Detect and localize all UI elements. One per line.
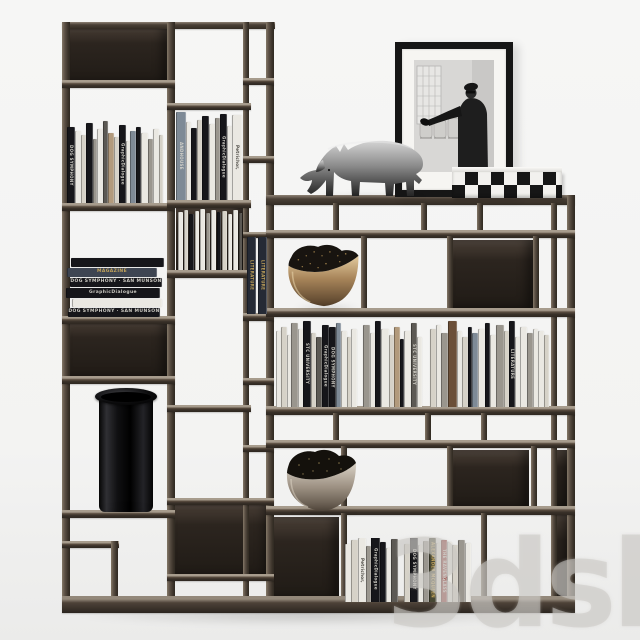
book-spine: GraphicDialogue (66, 288, 160, 298)
book-spine: LITERATURE (258, 237, 267, 314)
book-spine: DOG SYMPHONY (329, 327, 336, 407)
book-spine (417, 337, 422, 407)
book-spine: GraphicDialogue (322, 325, 329, 407)
shelf-rail (167, 270, 251, 278)
book-spine: Petrichor, (358, 538, 366, 602)
book-spine (222, 211, 227, 270)
book-spine (404, 331, 411, 407)
book-spine (195, 211, 199, 270)
books-mid-top: ANDHOUSEGraphicDialoguePetrichor, (176, 108, 243, 200)
book-spine: GraphicDialogue (119, 125, 126, 203)
book-spine (86, 123, 93, 203)
book-spine (159, 135, 163, 203)
book-spine (184, 210, 188, 270)
book-spine (291, 323, 298, 407)
render-canvas: DOG SYMPHONYGraphicDialogue ANDHOUSEGrap… (0, 0, 640, 640)
book-spine (228, 214, 232, 270)
black-vase (95, 388, 157, 512)
shelf-rail (167, 574, 274, 581)
shelf-rail (62, 80, 175, 88)
shelf-back-panel (451, 240, 533, 308)
shelf-rail (266, 230, 575, 238)
shelf-back-panel (173, 503, 270, 576)
book-spine (206, 213, 210, 270)
rhino-sculpture (298, 136, 432, 200)
book-spine: GraphicDialogue (220, 114, 227, 200)
vase-rim (95, 388, 157, 405)
book-spine (478, 329, 485, 407)
book-spine: DOG SYMPHONY · SAN MUNSON (68, 308, 160, 317)
book-spine (496, 325, 504, 407)
shelf-rail (333, 413, 339, 442)
bronze-bowl-upper (284, 242, 364, 311)
shelf-rail (243, 156, 274, 163)
book-spine: STC UNIVERSITY (303, 321, 311, 407)
shelf-rail (243, 378, 274, 385)
book-spine: Petrichor, (232, 115, 242, 200)
book-spine (448, 321, 457, 407)
shelf-rail (425, 413, 431, 442)
shelf-rail (62, 316, 175, 324)
shelf-rail (167, 405, 251, 412)
bronze-bowl-lower (283, 447, 361, 515)
book-spine (520, 327, 527, 407)
vase-body (99, 397, 153, 512)
book-spine (189, 214, 194, 270)
shelf-rail (533, 236, 539, 312)
books-flat-stack (178, 208, 242, 270)
shelf-rail (111, 541, 118, 598)
shelf-rail (167, 200, 251, 208)
book-spine: LITERATURE (247, 237, 256, 314)
book-spine (233, 210, 238, 270)
shelf-rail (62, 203, 175, 211)
object-shadow (290, 508, 358, 516)
object-shadow (98, 506, 156, 514)
book-spine (71, 258, 164, 267)
books-long-row: STC UNIVERSITYGraphicDialogueDOG SYMPHON… (276, 320, 552, 407)
shelf-back-panel (66, 26, 168, 83)
book-spine (239, 213, 242, 270)
shelf-rail (62, 376, 175, 384)
book-spine (211, 210, 216, 270)
book-spine: DOG SYMPHONY · SAN MUNSON (70, 278, 162, 287)
book-spine (441, 333, 448, 407)
shelf-back-panel (270, 517, 339, 598)
object-shadow (305, 194, 430, 201)
book-spine: MAGAZINE (67, 268, 157, 277)
shelf-back-panel (451, 450, 529, 508)
shelf-rail (477, 203, 483, 232)
object-shadow (292, 304, 362, 312)
shelf-back-panel (68, 320, 168, 378)
shelf-rail (333, 203, 339, 232)
book-spine (178, 212, 183, 270)
books-horizontal-stack: DOG SYMPHONY · SAN MUNSONGraphicDialogue… (66, 260, 164, 317)
book-spine (351, 329, 357, 407)
checkered-box-front (452, 172, 562, 198)
book-spine: GraphicDialogue (371, 538, 380, 602)
shelf-rail (421, 203, 427, 232)
shelf-rail (266, 406, 575, 415)
shelf-rail (481, 413, 487, 442)
shelf-rail (243, 78, 274, 85)
book-spine: ANDHOUSE (176, 112, 186, 200)
shelf-rail (447, 446, 453, 510)
shelf-rail (531, 446, 537, 510)
books-left-top: DOG SYMPHONYGraphicDialogue (67, 118, 166, 203)
book-spine (72, 299, 162, 307)
book-spine (544, 335, 549, 407)
books-gold-pair: LITERATURELITERATURE (247, 236, 269, 314)
book-spine (351, 540, 358, 602)
book-spine (381, 329, 389, 407)
book-spine (200, 209, 205, 270)
book-spine: DOG SYMPHONY (67, 127, 75, 203)
watermark: 3dsky (386, 516, 640, 640)
book-spine (363, 325, 370, 407)
book-spine (202, 116, 209, 200)
book-spine (217, 212, 221, 270)
checkered-box (452, 167, 562, 198)
book-spine (141, 133, 148, 203)
shelf-rail (167, 498, 274, 505)
shelf-rail (447, 236, 453, 312)
